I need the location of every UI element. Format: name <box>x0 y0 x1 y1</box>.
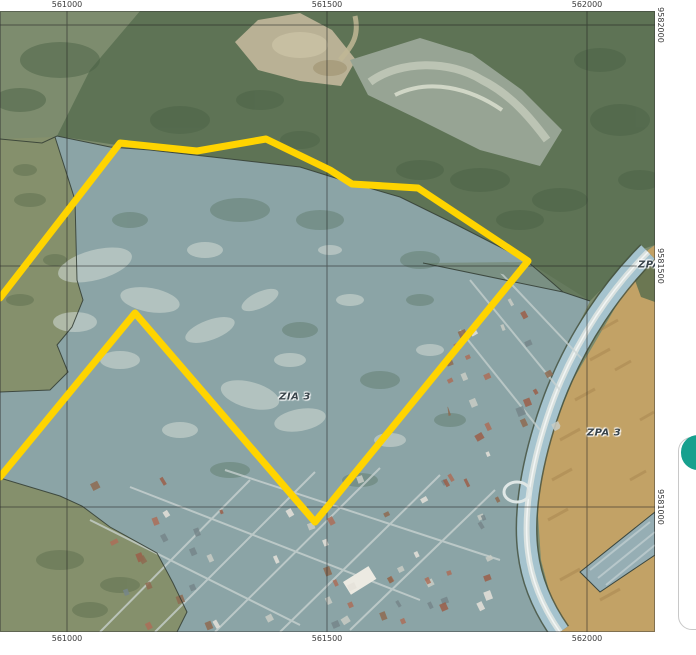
label-zpa3-edge: ZPA 3 <box>638 260 655 271</box>
label-zia3: ZIA 3 <box>279 392 311 403</box>
axis-label-right-9582000: 9582000 <box>656 7 665 43</box>
axis-label-bottom-562000: 562000 <box>572 634 603 643</box>
map-canvas[interactable]: ZIA 3 ZPA 3 ZPA 3 <box>0 0 655 655</box>
axis-label-top-561000: 561000 <box>52 0 83 9</box>
axis-label-bottom-561500: 561500 <box>312 634 343 643</box>
axis-label-top-561500: 561500 <box>312 0 343 9</box>
aerial-imagery <box>0 0 655 655</box>
label-zpa3: ZPA 3 <box>587 428 621 439</box>
page: { "map": { "axis": { "x": ["561000", "56… <box>0 0 696 655</box>
axis-label-right-9581000: 9581000 <box>656 489 665 525</box>
axis-label-right-9581500: 9581500 <box>656 248 665 284</box>
axis-label-top-562000: 562000 <box>572 0 603 9</box>
axis-label-bottom-561000: 561000 <box>52 634 83 643</box>
